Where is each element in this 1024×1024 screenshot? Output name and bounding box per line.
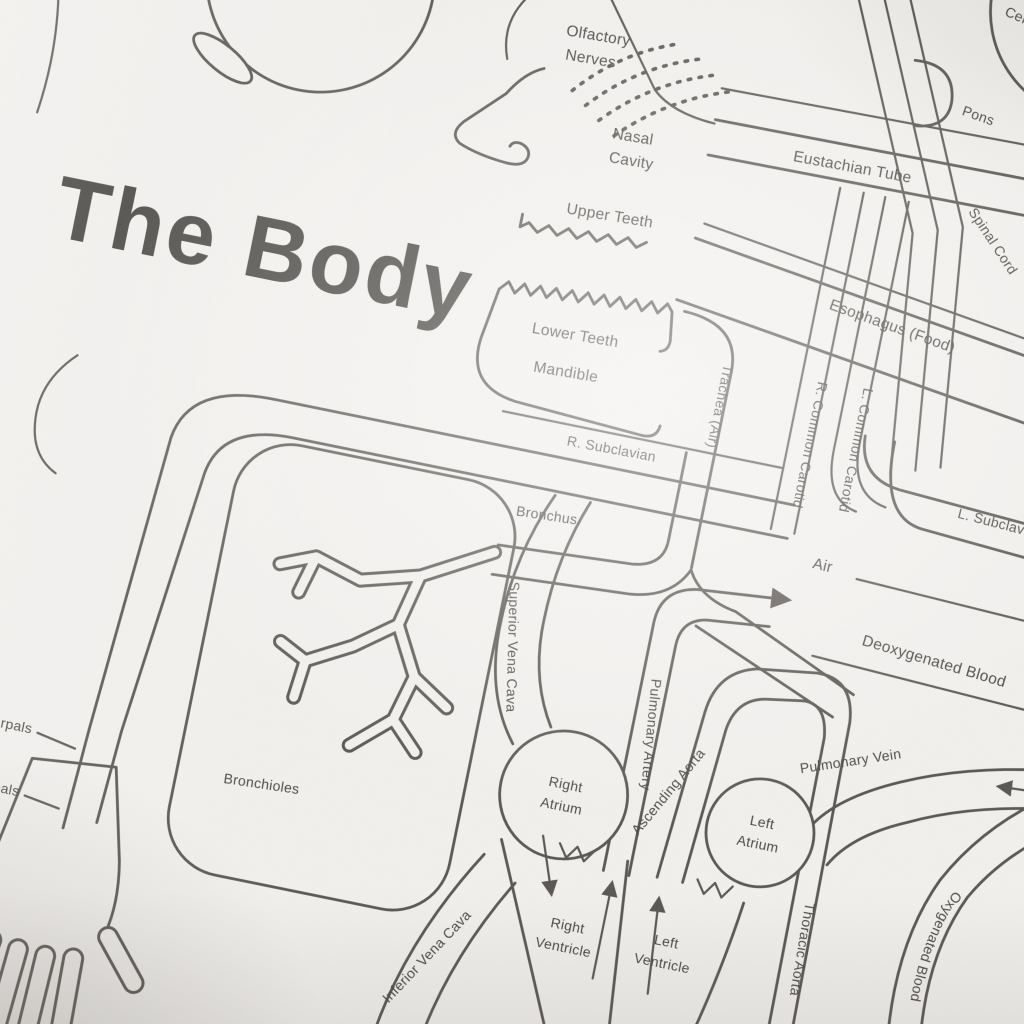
label-thoracic-aorta: Thoracic Aorta: [787, 902, 818, 998]
photo-of-letterpress-print: The Body Olfactory Nerves Nasal Cavity U…: [0, 0, 1024, 1024]
skull-outline-arc: [6, 0, 84, 113]
label-left-ventricle-1: Left: [653, 931, 680, 952]
inferior-vena-cava-tube: [352, 839, 519, 1024]
label-esophagus: Esophagus (Food): [827, 297, 957, 357]
pulmonary-vein-flow-arrow: [998, 782, 1024, 804]
carpals-leader-line: [23, 796, 59, 809]
label-cerebellum: Cerebellum: [1003, 3, 1024, 47]
label-nasal-cavity-1: Nasal: [611, 125, 654, 149]
label-left-ventricle-2: Ventricle: [633, 950, 691, 977]
bronchus-tube: [478, 531, 872, 720]
label-trachea: Trachea (Air): [704, 363, 737, 450]
label-metacarpals: Metacarpals: [0, 705, 34, 737]
superior-vena-cava-tube: [477, 490, 596, 751]
label-mandible: Mandible: [532, 359, 599, 387]
left-atrium-node: [696, 769, 823, 896]
label-superior-vena-cava: Superior Vena Cava: [503, 582, 522, 713]
label-spinal-cord: Spinal Cord: [965, 205, 1021, 278]
deoxygenated-underline: [810, 656, 1024, 727]
nose-outline: [452, 54, 547, 167]
mandible-outline: [468, 287, 681, 438]
label-bronchus: Bronchus: [515, 503, 578, 528]
label-oxygenated-blood: Oxygenated Blood: [907, 884, 966, 1007]
label-ascending-aorta: Ascending Aorta: [628, 745, 708, 837]
mitral-valve-zigzag: [695, 879, 733, 899]
pulmonary-flow-arrow: [593, 882, 613, 978]
label-upper-teeth: Upper Teeth: [565, 200, 654, 231]
lung-group: [158, 434, 526, 920]
lung-outline: [158, 434, 526, 920]
poster-title: The Body: [47, 157, 483, 339]
oxygenated-blood-textpath: Oxygenated Blood: [907, 884, 966, 1007]
pons-bump: [902, 60, 958, 132]
label-bronchioles: Bronchioles: [223, 770, 301, 797]
label-pulmonary-vein: Pulmonary Vein: [799, 745, 903, 776]
label-pulmonary-artery: Pulmonary Artery: [638, 678, 665, 791]
poster-sheet: The Body Olfactory Nerves Nasal Cavity U…: [0, 0, 1024, 1024]
label-r-subclavian: R. Subclavian: [566, 432, 658, 464]
label-l-subclavian: L. Subclavian: [956, 505, 1024, 543]
shoulder-curve: [25, 349, 79, 473]
hand-shape: [0, 728, 179, 1024]
label-pons: Pons: [960, 102, 997, 128]
label-deoxygenated-blood: Deoxygenated Blood: [860, 632, 1008, 691]
palm-outline: [0, 746, 142, 962]
label-lower-teeth: Lower Teeth: [531, 320, 620, 351]
label-olfactory-nerves-2: Nerves: [564, 47, 617, 72]
label-right-ventricle-1: Right: [549, 914, 586, 936]
metacarpals-leader-line: [36, 733, 77, 749]
label-olfactory-nerves-1: Olfactory: [565, 22, 632, 49]
brow-curve: [502, 0, 530, 61]
label-nasal-cavity-2: Cavity: [608, 149, 655, 173]
pulmonary-vein-tube: [803, 719, 1024, 921]
mandible-box: [468, 269, 684, 439]
anatomy-transit-diagram: The Body Olfactory Nerves Nasal Cavity U…: [0, 0, 1024, 1024]
label-right-ventricle-2: Ventricle: [534, 933, 592, 960]
label-air: Air: [811, 555, 834, 576]
label-r-common-carotid: R. Common Carotid: [790, 380, 831, 509]
label-carpals: Carpals: [0, 774, 21, 800]
